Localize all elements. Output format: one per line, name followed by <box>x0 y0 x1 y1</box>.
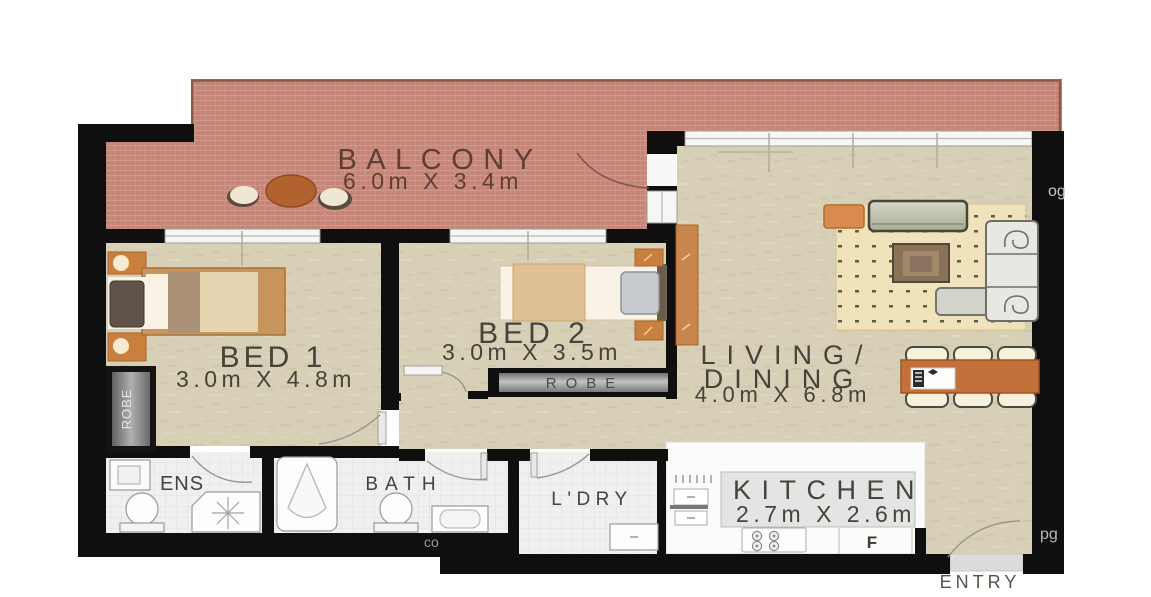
svg-text:3.0m X 4.8m: 3.0m X 4.8m <box>176 366 356 392</box>
svg-text:L'DRY: L'DRY <box>551 489 632 510</box>
svg-text:co: co <box>424 534 439 550</box>
svg-text:6.0m X 3.4m: 6.0m X 3.4m <box>343 168 523 194</box>
svg-text:og: og <box>1048 183 1066 200</box>
svg-text:pg: pg <box>1040 526 1058 543</box>
svg-text:F: F <box>867 533 877 552</box>
svg-text:3.0m X 3.5m: 3.0m X 3.5m <box>442 339 622 365</box>
svg-text:ENS: ENS <box>160 473 204 495</box>
svg-text:ROBE: ROBE <box>119 389 134 430</box>
svg-text:2.7m X 2.6m: 2.7m X 2.6m <box>736 501 916 527</box>
svg-text:BATH: BATH <box>365 474 442 495</box>
svg-text:4.0m X 6.8m: 4.0m X 6.8m <box>695 382 871 407</box>
svg-text:ROBE: ROBE <box>546 375 625 392</box>
svg-text:ENTRY: ENTRY <box>940 572 1021 592</box>
